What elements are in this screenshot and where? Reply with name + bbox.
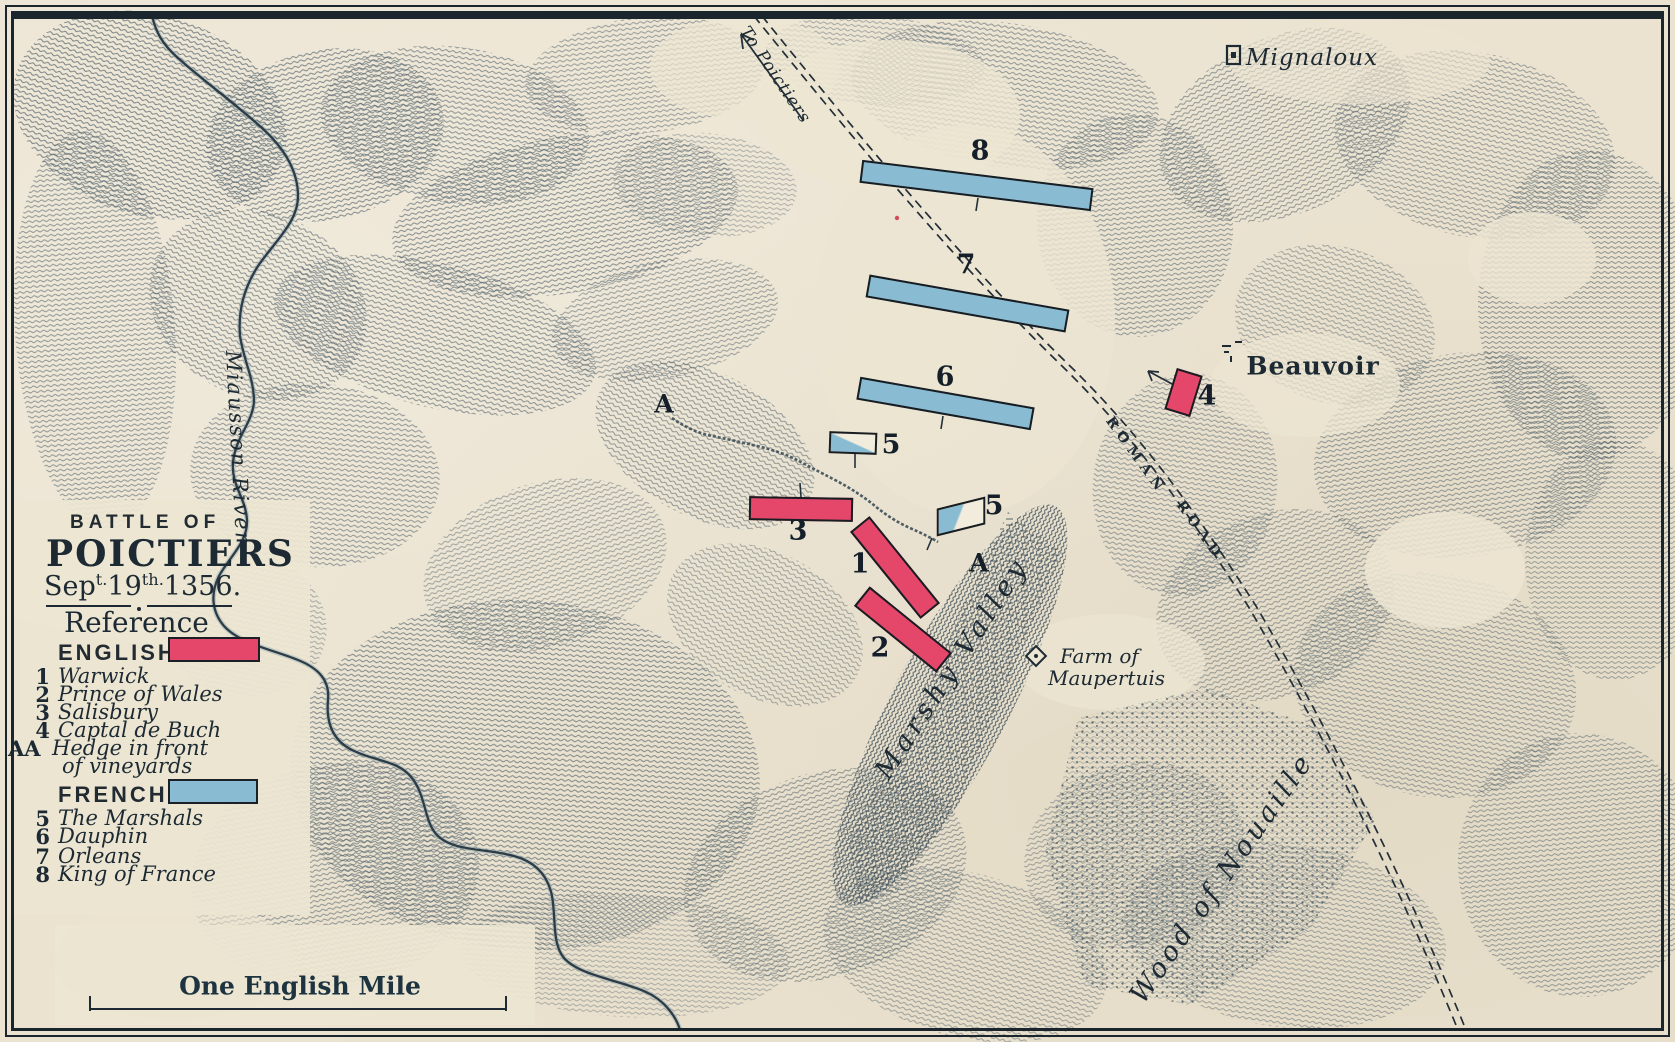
farm-label-line1: Farm of [1048,645,1165,667]
legend-english-label: ENGLISH [58,640,177,666]
unit-number-2: 2 [871,633,890,664]
red-speck [895,216,899,220]
unit-number-8: 8 [971,136,990,167]
reference-heading: Reference [64,606,209,639]
unit-number-5a: 5 [882,430,901,461]
label-beauvoir: Beauvoir [1246,352,1379,381]
farm-label-line2: Maupertuis [1048,667,1165,689]
date-prefix: Sep [44,571,96,602]
legend-item-num: 8 [20,862,50,887]
legend-english-swatch [168,637,260,662]
scale-label: One English Mile [179,972,421,1001]
legend-french-label: FRENCH [58,782,168,808]
legend-hedge-num: AA [8,736,38,761]
date-year: 1356. [164,571,241,602]
legend-hedge-line2: of vineyards [62,754,192,778]
unit-number-6: 6 [936,362,955,393]
label-farm-of-maupertuis: Farm of Maupertuis [1048,645,1165,689]
date-sup2: th. [142,570,164,589]
hedge-mark-a2: A [969,549,988,578]
unit-number-4: 4 [1198,381,1217,412]
battle-map: 8 7 6 5 5 3 1 2 4 A A To Poictiers Migna… [0,0,1675,1042]
unit-number-5b: 5 [985,491,1004,522]
date-sup1: t. [96,570,108,589]
unit-number-3: 3 [789,516,808,547]
unit-number-1: 1 [851,549,870,580]
map-title-date: Sept.19th.1356. [44,570,241,602]
map-title-line2: POICTIERS [46,533,295,575]
date-num: 19 [107,571,141,602]
legend-item-name: King of France [58,862,216,886]
label-mignaloux: Mignaloux [1246,45,1378,71]
map-title-line1: BATTLE OF [70,512,220,534]
french-unit-bar-5a [829,431,878,455]
legend-french-swatch [168,779,258,804]
hedge-mark-a1: A [654,390,673,419]
unit-number-7: 7 [957,250,976,281]
